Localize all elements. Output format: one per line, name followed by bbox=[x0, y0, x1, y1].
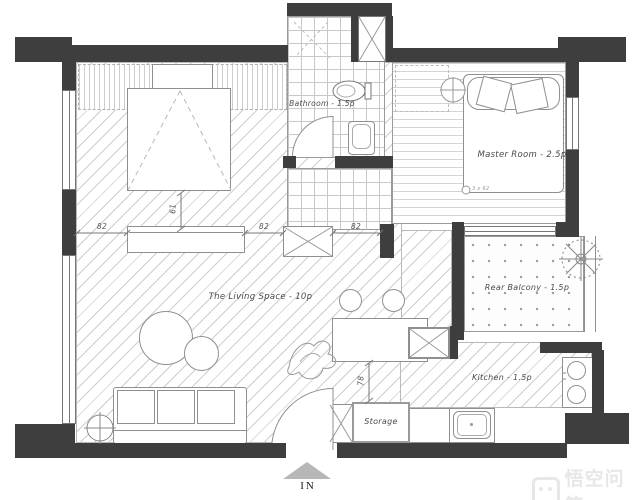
wall-top bbox=[66, 45, 288, 62]
dining-stool bbox=[382, 289, 405, 312]
wall-left-upper bbox=[62, 62, 76, 90]
coffee-table-small bbox=[184, 336, 219, 371]
wall-corner-bottom-right bbox=[565, 413, 629, 444]
dim-78: 78 bbox=[357, 368, 365, 394]
entrance-label: IN bbox=[285, 480, 331, 492]
watermark-text: 悟空问答 bbox=[565, 464, 640, 500]
storage-label: Storage bbox=[350, 418, 412, 426]
wall-bath-door-stub bbox=[283, 156, 296, 168]
sofa-front-line bbox=[113, 430, 247, 431]
window-left-lower bbox=[62, 255, 76, 424]
stove-burner bbox=[567, 385, 586, 404]
wall-bathroom-top bbox=[287, 3, 392, 16]
fold-down-bed bbox=[127, 88, 231, 191]
sofa-cushion bbox=[157, 390, 195, 424]
living-space-label: The Living Space - 10p bbox=[178, 293, 343, 302]
window-master-balcony bbox=[464, 226, 556, 236]
wall-partition-stub bbox=[380, 224, 394, 258]
wall-kitchen-right bbox=[592, 350, 604, 414]
wall-bottom-right bbox=[337, 443, 567, 458]
wall-bathroom-bottom bbox=[335, 156, 393, 168]
master-room-label: Master Room - 2.5p bbox=[466, 151, 578, 160]
fridge-crossed bbox=[408, 327, 450, 359]
watermark-logo-icon bbox=[532, 477, 560, 500]
tv-cabinet bbox=[127, 226, 245, 253]
wall-right-upper bbox=[566, 62, 579, 97]
tv-cabinet-line bbox=[129, 232, 243, 233]
window-master-right bbox=[566, 97, 579, 150]
dim-82-right: 82 bbox=[344, 223, 368, 231]
stove-burner bbox=[567, 361, 586, 380]
sofa-cushion bbox=[117, 390, 155, 424]
entrance-arrow-icon bbox=[283, 462, 331, 479]
window-left-upper bbox=[62, 90, 76, 190]
wall-dining-stub bbox=[450, 326, 458, 359]
dim-61: 61 bbox=[169, 196, 177, 222]
master-closet bbox=[395, 65, 449, 112]
wall-corner-top-left bbox=[15, 37, 72, 62]
wall-shaft-left bbox=[351, 16, 358, 62]
rear-balcony-label: Rear Balcony - 1.5p bbox=[460, 284, 594, 292]
bath-sink-basin bbox=[352, 124, 371, 149]
floor-plan: Bathroom - 1.5p Master Room - 2.5p 3 x 6… bbox=[0, 0, 640, 500]
watermark: 悟空问答 bbox=[532, 464, 640, 500]
wall-master-top bbox=[390, 48, 568, 62]
wall-left-mid bbox=[62, 190, 76, 255]
wall-bottom-left bbox=[55, 443, 286, 458]
dim-82-left: 82 bbox=[90, 223, 114, 231]
sofa-cushion bbox=[197, 390, 235, 424]
kitchen-label: Kitchen - 1.5p bbox=[440, 374, 564, 382]
master-room-note: 3 x 62 bbox=[472, 187, 532, 192]
wall-corner-top-right bbox=[558, 37, 626, 62]
duct-shaft-crossed bbox=[358, 16, 386, 62]
wall-right-mid bbox=[566, 150, 579, 232]
bathroom-label: Bathroom - 1.5p bbox=[282, 100, 362, 108]
wall-balcony-block-right bbox=[556, 222, 579, 237]
wall-balcony-left bbox=[452, 222, 464, 340]
wall-balcony-kitchen bbox=[540, 342, 602, 353]
cabinet-crossed bbox=[283, 226, 333, 257]
bathroom-annex-floor bbox=[287, 168, 392, 230]
sink-drain bbox=[470, 423, 473, 426]
dim-82-mid: 82 bbox=[252, 223, 276, 231]
